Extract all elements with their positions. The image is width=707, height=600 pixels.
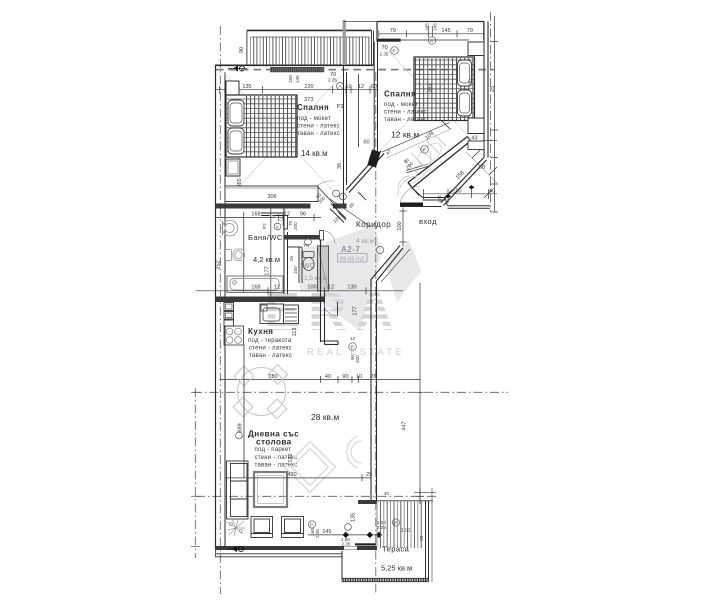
svg-text:таван - латекс: таван - латекс [249, 352, 292, 359]
svg-text:180: 180 [468, 79, 473, 87]
svg-text:145: 145 [295, 75, 300, 83]
svg-text:P: P [393, 49, 396, 54]
svg-text:2.35: 2.35 [380, 52, 389, 57]
svg-text:Р2: Р2 [262, 223, 267, 229]
svg-text:Коридор: Коридор [356, 220, 391, 229]
svg-text:150: 150 [452, 188, 461, 194]
svg-text:под - мокет: под - мокет [384, 101, 418, 108]
svg-text:90: 90 [342, 374, 348, 380]
svg-text:2.35: 2.35 [328, 78, 337, 83]
svg-text:Спалня: Спалня [297, 103, 329, 112]
svg-text:420: 420 [287, 472, 296, 478]
svg-text:145: 145 [432, 23, 437, 31]
svg-text:100: 100 [307, 284, 316, 290]
svg-text:177: 177 [265, 266, 271, 275]
svg-text:12 кв.м: 12 кв.м [391, 130, 419, 140]
svg-text:стени - латекс: стени - латекс [297, 123, 340, 130]
svg-text:таван - латекс: таван - латекс [255, 462, 298, 469]
svg-text:1,5 кв.м: 1,5 кв.м [304, 275, 327, 282]
svg-text:Спалня: Спалня [384, 90, 416, 99]
svg-text:135: 135 [242, 84, 251, 90]
svg-text:P: P [310, 523, 313, 528]
svg-text:4,2 кв.м: 4,2 кв.м [253, 255, 280, 264]
svg-text:10: 10 [356, 374, 362, 380]
svg-text:40: 40 [325, 374, 331, 380]
svg-text:таван - латекс: таван - латекс [384, 116, 427, 123]
svg-text:177: 177 [353, 306, 359, 315]
svg-text:135: 135 [351, 513, 357, 522]
svg-text:12: 12 [350, 336, 356, 341]
svg-text:130: 130 [347, 284, 356, 290]
svg-text:26: 26 [370, 374, 376, 380]
svg-text:168: 168 [251, 284, 260, 290]
svg-text:245: 245 [322, 529, 331, 535]
svg-text:220: 220 [304, 84, 313, 90]
svg-text:145: 145 [441, 28, 450, 34]
svg-text:150: 150 [293, 266, 298, 274]
svg-text:4 кв.м: 4 кв.м [356, 238, 375, 245]
svg-text:36: 36 [337, 163, 343, 169]
svg-text:12: 12 [328, 284, 334, 290]
svg-text:124: 124 [437, 195, 442, 203]
svg-text:58: 58 [479, 165, 485, 171]
svg-text:таван - латекс: таван - латекс [297, 130, 340, 137]
svg-text:200: 200 [355, 355, 360, 363]
svg-text:90: 90 [239, 47, 245, 53]
svg-text:5,25 кв.м: 5,25 кв.м [381, 564, 412, 573]
svg-text:100: 100 [397, 221, 403, 230]
svg-text:2,35: 2,35 [377, 525, 386, 530]
svg-text:40: 40 [384, 491, 390, 496]
svg-text:Баня/WC: Баня/WC [248, 233, 283, 242]
svg-text:89.06 m2: 89.06 m2 [340, 257, 364, 263]
svg-text:28 кв.м: 28 кв.м [311, 412, 339, 422]
svg-text:200: 200 [293, 222, 298, 230]
svg-text:145: 145 [424, 23, 429, 31]
svg-text:96: 96 [300, 212, 306, 218]
svg-text:150: 150 [401, 528, 410, 534]
svg-text:306: 306 [267, 194, 276, 200]
svg-text:вход: вход [419, 217, 437, 226]
svg-text:25: 25 [289, 255, 294, 261]
svg-text:12: 12 [274, 284, 280, 290]
svg-text:113: 113 [292, 328, 298, 337]
svg-text:168: 168 [251, 212, 260, 218]
svg-text:под - теракота: под - теракота [248, 337, 292, 344]
svg-text:под - мокет: под - мокет [297, 115, 331, 122]
svg-text:стени - латекс: стени - латекс [384, 109, 427, 116]
svg-text:252: 252 [216, 260, 222, 269]
svg-text:А2-7: А2-7 [341, 245, 360, 254]
svg-text:P: P [423, 148, 426, 153]
svg-text:под - паркет: под - паркет [255, 446, 292, 453]
svg-text:Р3: Р3 [337, 104, 344, 110]
svg-text:79: 79 [467, 28, 473, 34]
svg-text:373: 373 [304, 97, 313, 103]
svg-text:689: 689 [238, 423, 244, 432]
svg-text:60: 60 [363, 140, 369, 146]
svg-text:P: P [394, 521, 397, 526]
svg-text:70: 70 [382, 45, 388, 51]
svg-text:79: 79 [390, 28, 396, 34]
svg-text:Кухня: Кухня [248, 327, 273, 336]
svg-text:303: 303 [428, 84, 434, 93]
svg-text:25: 25 [366, 472, 372, 478]
svg-text:150: 150 [288, 75, 293, 83]
svg-text:стени - латекс: стени - латекс [249, 345, 292, 352]
svg-text:P: P [351, 345, 354, 350]
svg-text:Тераса: Тераса [382, 545, 410, 554]
svg-text:2.35: 2.35 [315, 529, 320, 538]
svg-text:2,35: 2,35 [342, 542, 351, 547]
svg-text:14 кв.м: 14 кв.м [301, 149, 328, 158]
svg-text:447: 447 [402, 421, 408, 430]
svg-text:25: 25 [490, 86, 496, 92]
